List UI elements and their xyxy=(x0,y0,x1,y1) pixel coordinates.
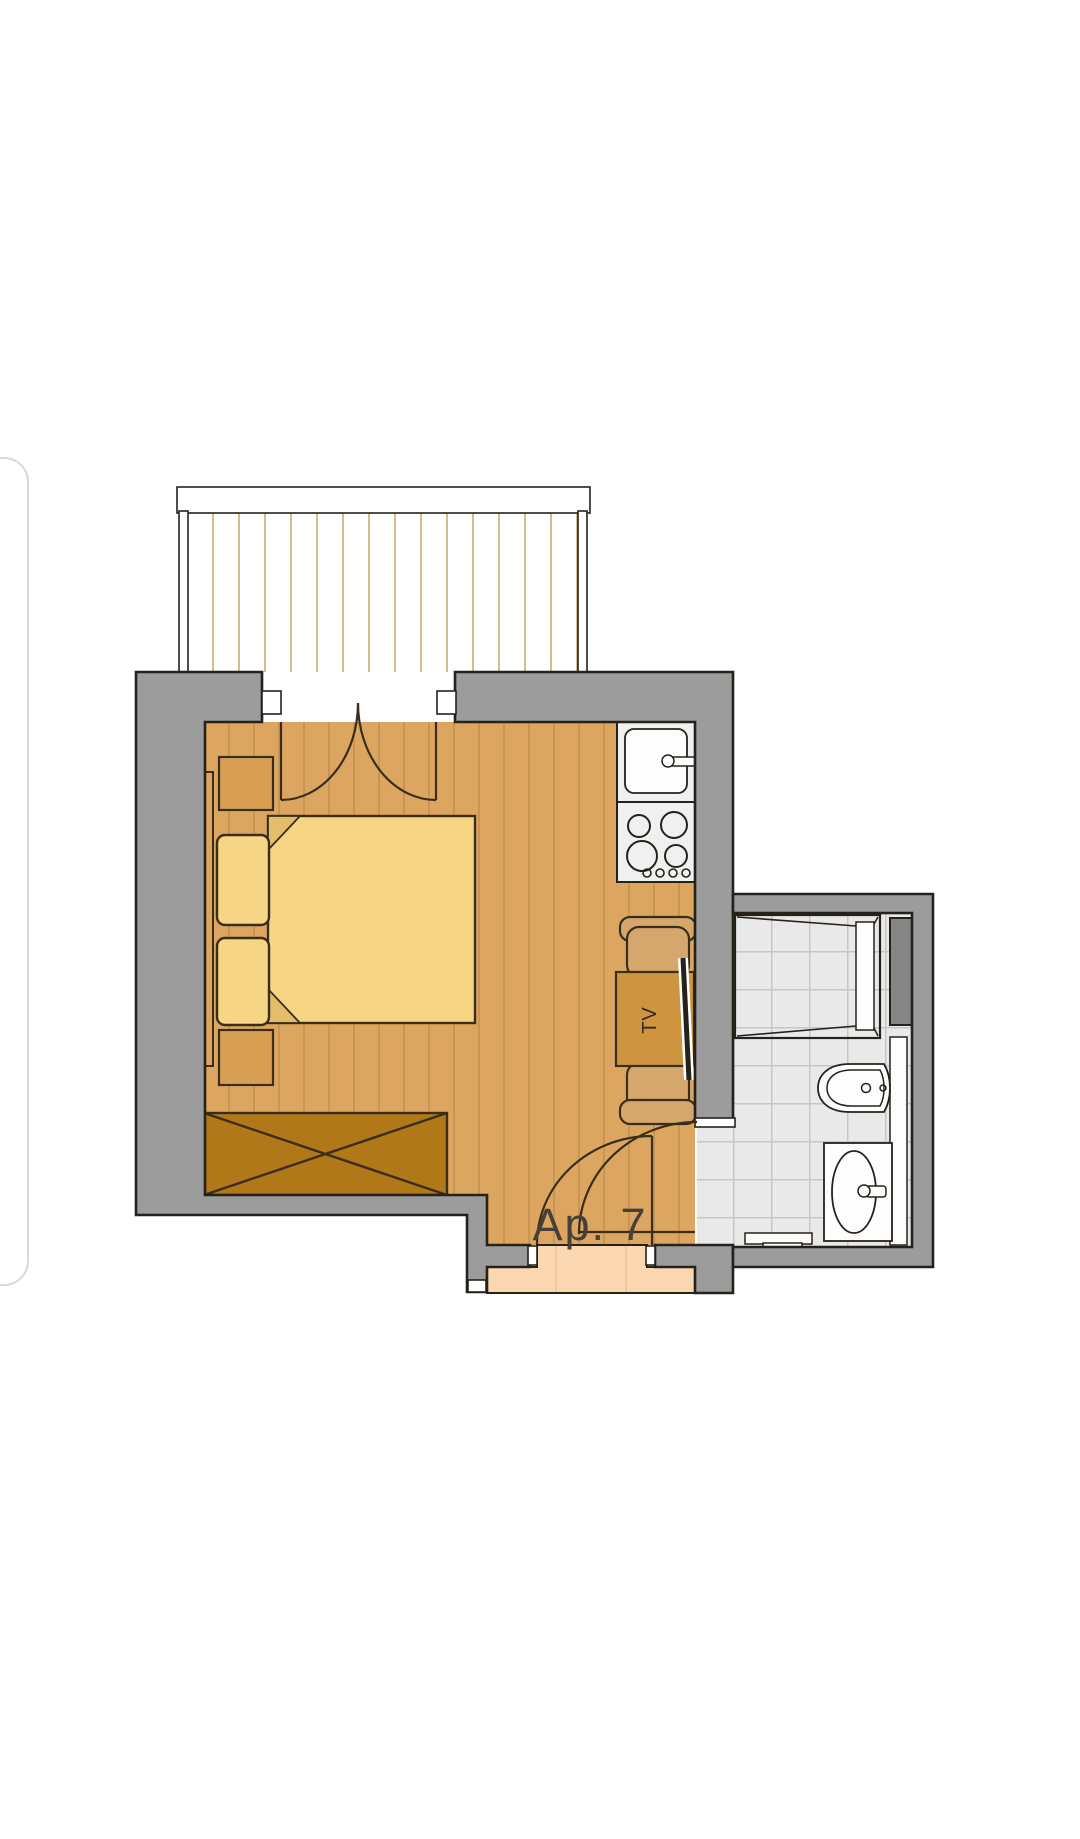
apartment-label: Ap. 7 xyxy=(532,1199,647,1250)
balcony-rail-right xyxy=(578,511,587,672)
adjacent-card-edge xyxy=(0,458,28,1285)
sink-faucet-knob xyxy=(662,755,674,767)
toilet xyxy=(818,1064,890,1112)
balcony-door-jamb-left xyxy=(262,691,281,714)
balcony-rail-top xyxy=(177,487,590,513)
nightstand-bottom xyxy=(219,1030,273,1085)
balcony-deck xyxy=(188,513,578,672)
washbasin-faucet-knob xyxy=(858,1185,870,1197)
pillow-top xyxy=(217,835,269,925)
tv-label: TV xyxy=(639,1006,661,1034)
toilet-bowl-outer xyxy=(818,1064,890,1112)
balcony xyxy=(177,487,590,672)
floor-plan[interactable]: TV xyxy=(0,0,1080,1839)
floor-plan-page: TV xyxy=(0,0,1080,1839)
bathroom-door-threshold xyxy=(695,1118,735,1127)
wardrobe xyxy=(204,1113,447,1195)
tv-area: TV xyxy=(616,917,696,1124)
bed-mattress xyxy=(268,816,475,1023)
chair-bottom-back xyxy=(620,1100,696,1124)
pillow-bottom xyxy=(217,938,269,1025)
nightstand-top xyxy=(219,757,273,810)
kitchenette xyxy=(617,722,695,882)
washbasin xyxy=(824,1143,892,1241)
ventilation-shaft xyxy=(890,918,912,1025)
step-column-jamb xyxy=(468,1280,486,1292)
shower-inner xyxy=(856,922,874,1030)
balcony-rail-left xyxy=(179,511,188,672)
bathroom-door-floor xyxy=(697,1127,733,1246)
balcony-door-jamb-right xyxy=(437,691,456,714)
